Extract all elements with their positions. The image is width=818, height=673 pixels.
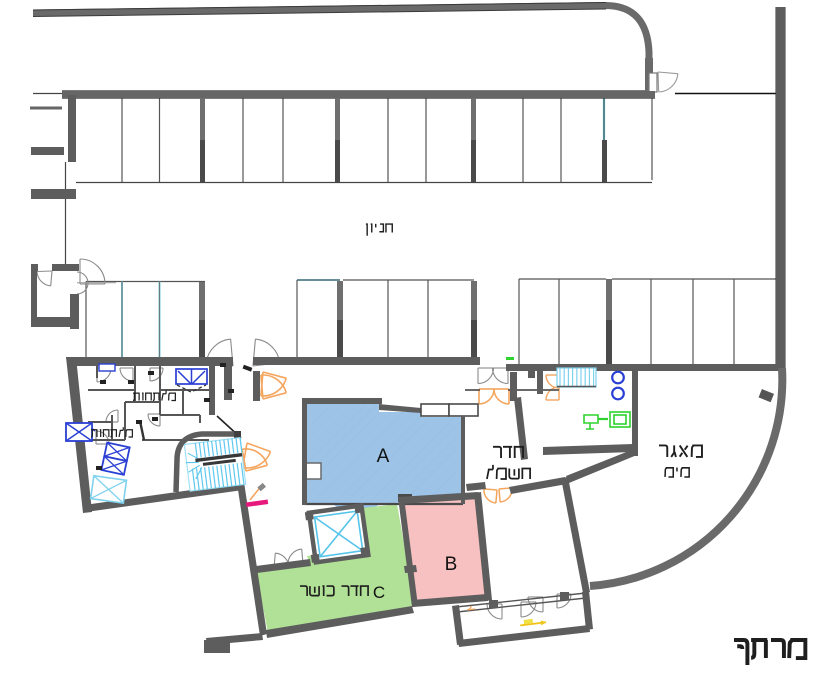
- svg-text:A: A: [377, 446, 390, 467]
- svg-text:B: B: [445, 554, 458, 575]
- svg-text:C: C: [373, 583, 385, 602]
